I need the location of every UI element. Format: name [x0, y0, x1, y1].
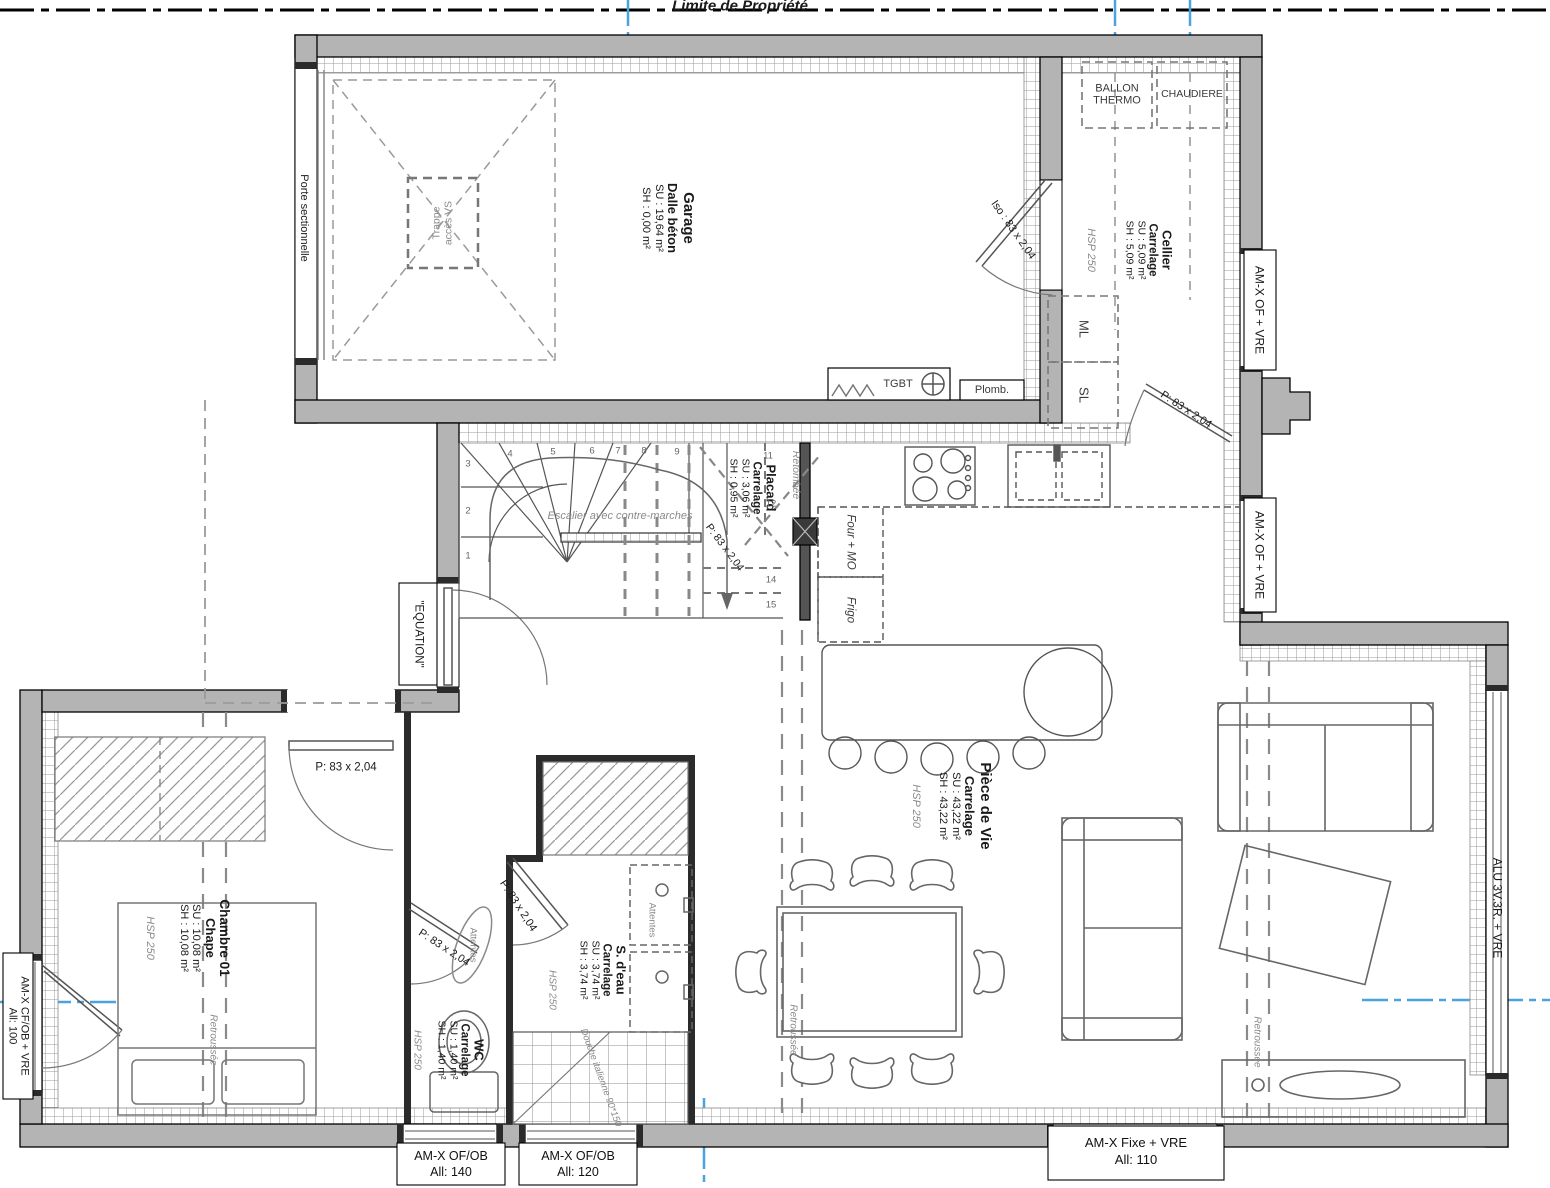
- stair-step-5: 5: [550, 448, 555, 459]
- trappe-label: Trappe accès VS: [431, 201, 455, 245]
- property-line-label: Limite de Propriété: [672, 0, 808, 15]
- stair-step-2: 2: [465, 507, 470, 518]
- plan-drawing: [0, 0, 1550, 1188]
- ml-label: ML: [1076, 320, 1091, 338]
- window-amx-of-vre-1: AM-X OF + VRE: [1252, 266, 1265, 354]
- attentes-sdeau: Attentes: [646, 903, 657, 938]
- window-fixe-110-label: AM-X Fixe + VRE All: 110: [1085, 1135, 1187, 1169]
- stair-step-15: 15: [766, 601, 777, 612]
- four-mo-label: Four + MO: [844, 514, 857, 569]
- walls: [20, 35, 1508, 1147]
- living-room: [736, 703, 1465, 1117]
- room-label-chambre: Chambre 01 Chape SU : 10,08 m² SH : 10,0…: [178, 899, 232, 976]
- window-amx-of-vre-2: AM-X OF + VRE: [1252, 511, 1265, 599]
- room-label-garage: Garage Dalle béton SU : 19,64 m² SH : 0,…: [640, 183, 696, 253]
- hsp-piece-de-vie: HSP 250: [910, 784, 922, 828]
- sl-label: SL: [1076, 387, 1091, 403]
- kitchen: [818, 445, 1240, 775]
- retroussee-chambre: Retroussée: [207, 1014, 218, 1065]
- stair-step-7: 7: [615, 447, 620, 458]
- hsp-cellier: HSP 250: [1085, 228, 1097, 272]
- stair-step-6: 6: [589, 447, 594, 458]
- floor-plan: Limite de Propriété Garage Dalle béton S…: [0, 0, 1550, 1188]
- equation-door-label: "EQUATION": [412, 600, 425, 667]
- retombee-label: Retombée: [789, 451, 801, 499]
- room-label-sdeau: S. d'eau Carrelage SU : 3,74 m² SH : 3,7…: [577, 941, 628, 1000]
- room-label-piece-de-vie: Pièce de Vie Carrelage SU : 43,22 m² SH …: [937, 762, 993, 849]
- hsp-sdeau: HSP 250: [546, 970, 557, 1010]
- ballon-thermo-label: BALLON THERMO: [1093, 83, 1141, 108]
- garage-trap: [205, 80, 555, 703]
- windows: [20, 62, 1508, 1147]
- window-ofob-140-label: AM-X OF/OB All: 140: [414, 1148, 488, 1181]
- window-ofob-120-label: AM-X OF/OB All: 120: [541, 1148, 615, 1181]
- window-alu-label: ALU 3V.3R. + VRE: [1490, 858, 1503, 959]
- stair-step-9: 9: [674, 448, 679, 459]
- stair-step-1: 1: [465, 552, 470, 563]
- plomb-label: Plomb.: [975, 384, 1009, 396]
- tgbt-label: TGBT: [883, 378, 912, 390]
- room-label-wc: WC Carrelage SU : 1,40 m² SH : 1,40 m²: [435, 1021, 486, 1080]
- stair-step-12: 12: [766, 500, 777, 511]
- retroussee-sejour: Retroussée: [787, 1004, 798, 1055]
- closets: [55, 737, 688, 855]
- chaudiere-label: CHAUDIERE: [1161, 89, 1223, 101]
- stair-step-14: 14: [766, 576, 777, 587]
- p83-chambre: P: 83 x 2,04: [315, 762, 376, 775]
- stair-step-8: 8: [641, 447, 646, 458]
- hsp-wc: HSP 250: [411, 1030, 422, 1070]
- hsp-chambre: HSP 250: [144, 916, 156, 960]
- stair-step-3: 3: [465, 460, 470, 471]
- frigo-label: Frigo: [844, 597, 857, 623]
- room-label-cellier: Cellier Carrelage SU : 5,09 m² SH : 5,09…: [1123, 221, 1174, 280]
- retroussee-droite: Retroussée: [1251, 1016, 1262, 1067]
- porte-sectionnelle-label: Porte sectionnelle: [298, 174, 310, 261]
- window-cfob-label: AM-X CF/OB + VRE All: 100: [6, 976, 31, 1075]
- stairs-label: Escalier avec contre-marches: [548, 510, 693, 522]
- stair-step-11: 11: [763, 452, 773, 463]
- stair-step-4: 4: [507, 450, 512, 461]
